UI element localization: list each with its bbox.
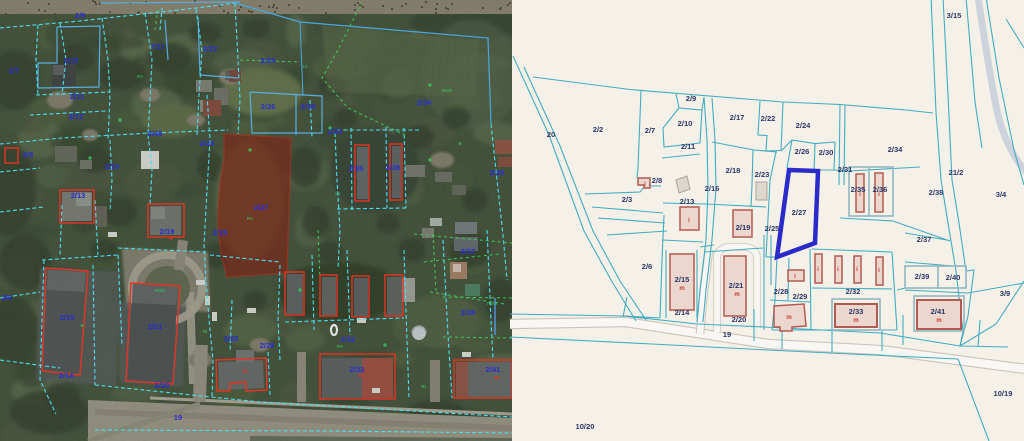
- svg-text:m: m: [679, 286, 684, 292]
- svg-text:2/15: 2/15: [60, 313, 76, 322]
- svg-text:2/30: 2/30: [819, 148, 834, 157]
- svg-text:2/48: 2/48: [148, 129, 163, 138]
- svg-text:2/24: 2/24: [261, 56, 277, 65]
- svg-text:2/24: 2/24: [796, 121, 812, 130]
- svg-text:Bi: Bi: [203, 329, 207, 334]
- svg-text:LV: LV: [335, 191, 340, 196]
- svg-text:B: B: [458, 141, 461, 146]
- svg-text:Bz: Bz: [421, 384, 427, 389]
- svg-text:2/30: 2/30: [301, 102, 316, 111]
- svg-text:3/4: 3/4: [996, 190, 1007, 199]
- svg-text:m: m: [359, 373, 364, 379]
- svg-text:RV: RV: [247, 216, 253, 221]
- svg-text:2/21: 2/21: [148, 322, 164, 331]
- svg-text:m: m: [786, 315, 791, 321]
- svg-text:2/18: 2/18: [726, 166, 741, 175]
- svg-text:2/32: 2/32: [341, 335, 356, 344]
- svg-text:2/25: 2/25: [765, 224, 781, 233]
- svg-text:m: m: [243, 369, 248, 375]
- svg-text:10/20: 10/20: [575, 422, 594, 431]
- svg-text:2/34: 2/34: [417, 98, 433, 107]
- svg-text:2/16: 2/16: [705, 184, 720, 193]
- svg-text:2/26: 2/26: [261, 102, 276, 111]
- svg-text:2/28: 2/28: [224, 334, 239, 343]
- svg-text:Ls: Ls: [303, 64, 309, 69]
- svg-text:2/10: 2/10: [678, 119, 693, 128]
- svg-text:RIVb: RIVb: [442, 88, 453, 93]
- svg-text:19: 19: [174, 413, 182, 422]
- svg-text:2/39: 2/39: [461, 308, 476, 317]
- svg-text:2/19: 2/19: [160, 227, 175, 236]
- svg-text:2/6: 2/6: [642, 262, 653, 271]
- svg-text:2/23: 2/23: [200, 139, 215, 148]
- svg-text:2/37: 2/37: [461, 247, 476, 256]
- svg-text:2/27: 2/27: [254, 203, 269, 212]
- svg-text:2/23: 2/23: [755, 170, 770, 179]
- svg-text:2/20: 2/20: [155, 381, 170, 390]
- svg-text:2/38: 2/38: [490, 168, 505, 177]
- svg-text:m: m: [936, 318, 941, 324]
- svg-text:2/36: 2/36: [873, 185, 888, 194]
- svg-text:2/22: 2/22: [203, 44, 218, 53]
- svg-text:2/26: 2/26: [795, 147, 810, 156]
- svg-text:2/9: 2/9: [686, 94, 697, 103]
- svg-text:RVIa: RVIa: [487, 301, 497, 306]
- svg-text:2/15: 2/15: [675, 275, 691, 284]
- svg-text:2/14: 2/14: [59, 371, 75, 380]
- svg-text:2/40: 2/40: [946, 273, 961, 282]
- svg-text:2/39: 2/39: [915, 272, 930, 281]
- svg-text:2/31: 2/31: [838, 165, 854, 174]
- svg-text:RV: RV: [137, 74, 143, 79]
- svg-text:2/20: 2/20: [732, 315, 747, 324]
- svg-text:2/8: 2/8: [652, 176, 663, 185]
- svg-text:2/25: 2/25: [213, 228, 229, 237]
- svg-text:2/33: 2/33: [849, 307, 864, 316]
- svg-text:2/28: 2/28: [774, 287, 789, 296]
- svg-text:21/2: 21/2: [949, 168, 964, 177]
- svg-text:2/38: 2/38: [929, 188, 944, 197]
- svg-text:2/32: 2/32: [846, 287, 861, 296]
- svg-text:2/8: 2/8: [23, 150, 34, 159]
- svg-text:2/7: 2/7: [645, 126, 656, 135]
- svg-text:2/7: 2/7: [9, 66, 20, 75]
- svg-text:20: 20: [547, 130, 555, 139]
- svg-text:2/22: 2/22: [761, 114, 776, 123]
- svg-text:RV: RV: [337, 344, 343, 349]
- svg-text:2/13: 2/13: [71, 191, 86, 200]
- svg-text:19: 19: [723, 330, 731, 339]
- svg-text:2/37: 2/37: [917, 235, 932, 244]
- svg-text:2/6: 2/6: [2, 293, 13, 302]
- svg-text:7/17: 7/17: [151, 42, 166, 51]
- svg-text:2/19: 2/19: [736, 223, 751, 232]
- svg-text:2/29: 2/29: [260, 341, 275, 350]
- svg-text:10/19: 10/19: [993, 389, 1012, 398]
- svg-text:3/9: 3/9: [1000, 289, 1011, 298]
- svg-text:2/11: 2/11: [681, 142, 696, 151]
- svg-text:2/11: 2/11: [70, 92, 85, 101]
- svg-text:2/36: 2/36: [386, 163, 401, 172]
- svg-text:2/34: 2/34: [888, 145, 904, 154]
- svg-text:RIVa: RIVa: [155, 288, 165, 293]
- svg-text:2/9: 2/9: [75, 11, 86, 20]
- svg-text:2/29: 2/29: [793, 292, 808, 301]
- svg-text:2/16: 2/16: [105, 162, 120, 171]
- svg-text:2/13: 2/13: [680, 197, 695, 206]
- svg-text:2/27: 2/27: [792, 208, 807, 217]
- svg-text:2/21: 2/21: [729, 281, 745, 290]
- svg-text:2/35: 2/35: [349, 164, 365, 173]
- svg-text:2/41: 2/41: [486, 365, 502, 374]
- svg-text:m: m: [169, 236, 174, 242]
- svg-text:2/14: 2/14: [675, 308, 691, 317]
- svg-text:m: m: [853, 318, 858, 324]
- svg-text:2/3: 2/3: [622, 195, 633, 204]
- svg-text:2/17: 2/17: [730, 113, 745, 122]
- svg-text:B: B: [80, 323, 83, 328]
- svg-text:2/12: 2/12: [69, 112, 84, 121]
- svg-text:m: m: [495, 375, 500, 381]
- svg-text:3/15: 3/15: [947, 11, 963, 20]
- svg-text:2/2: 2/2: [593, 125, 604, 134]
- svg-text:2/10: 2/10: [64, 56, 79, 65]
- svg-text:m: m: [734, 292, 739, 298]
- svg-text:2/41: 2/41: [931, 307, 947, 316]
